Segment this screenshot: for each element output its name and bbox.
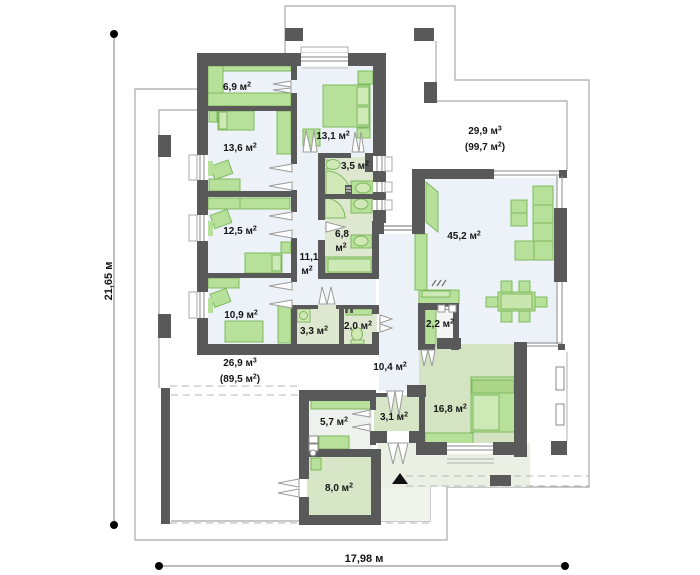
svg-text:8,0 м2: 8,0 м2 xyxy=(325,483,353,495)
svg-text:2,0 м2: 2,0 м2 xyxy=(344,321,372,333)
svg-text:13,1 м2: 13,1 м2 xyxy=(316,131,350,143)
svg-text:29,9 м3: 29,9 м3 xyxy=(468,126,502,138)
svg-text:10,4 м2: 10,4 м2 xyxy=(373,362,407,374)
svg-text:21,65 м: 21,65 м xyxy=(103,262,115,301)
svg-text:3,5 м2: 3,5 м2 xyxy=(341,161,369,173)
svg-text:3,1 м2: 3,1 м2 xyxy=(380,412,408,424)
svg-text:2,2 м2: 2,2 м2 xyxy=(426,319,454,331)
svg-text:45,2 м2: 45,2 м2 xyxy=(447,231,481,243)
svg-text:5,7 м2: 5,7 м2 xyxy=(320,417,348,429)
svg-text:10,9 м2: 10,9 м2 xyxy=(224,310,258,322)
svg-text:6,9 м2: 6,9 м2 xyxy=(223,82,251,94)
svg-text:6,8: 6,8 xyxy=(335,229,349,240)
svg-text:13,6 м2: 13,6 м2 xyxy=(223,143,257,155)
svg-text:26,9 м3: 26,9 м3 xyxy=(223,358,257,370)
svg-text:3,3 м2: 3,3 м2 xyxy=(300,326,328,338)
svg-text:11,1: 11,1 xyxy=(300,252,319,263)
svg-text:12,5 м2: 12,5 м2 xyxy=(223,226,257,238)
svg-text:16,8 м2: 16,8 м2 xyxy=(433,404,467,416)
svg-text:17,98 м: 17,98 м xyxy=(345,553,384,565)
